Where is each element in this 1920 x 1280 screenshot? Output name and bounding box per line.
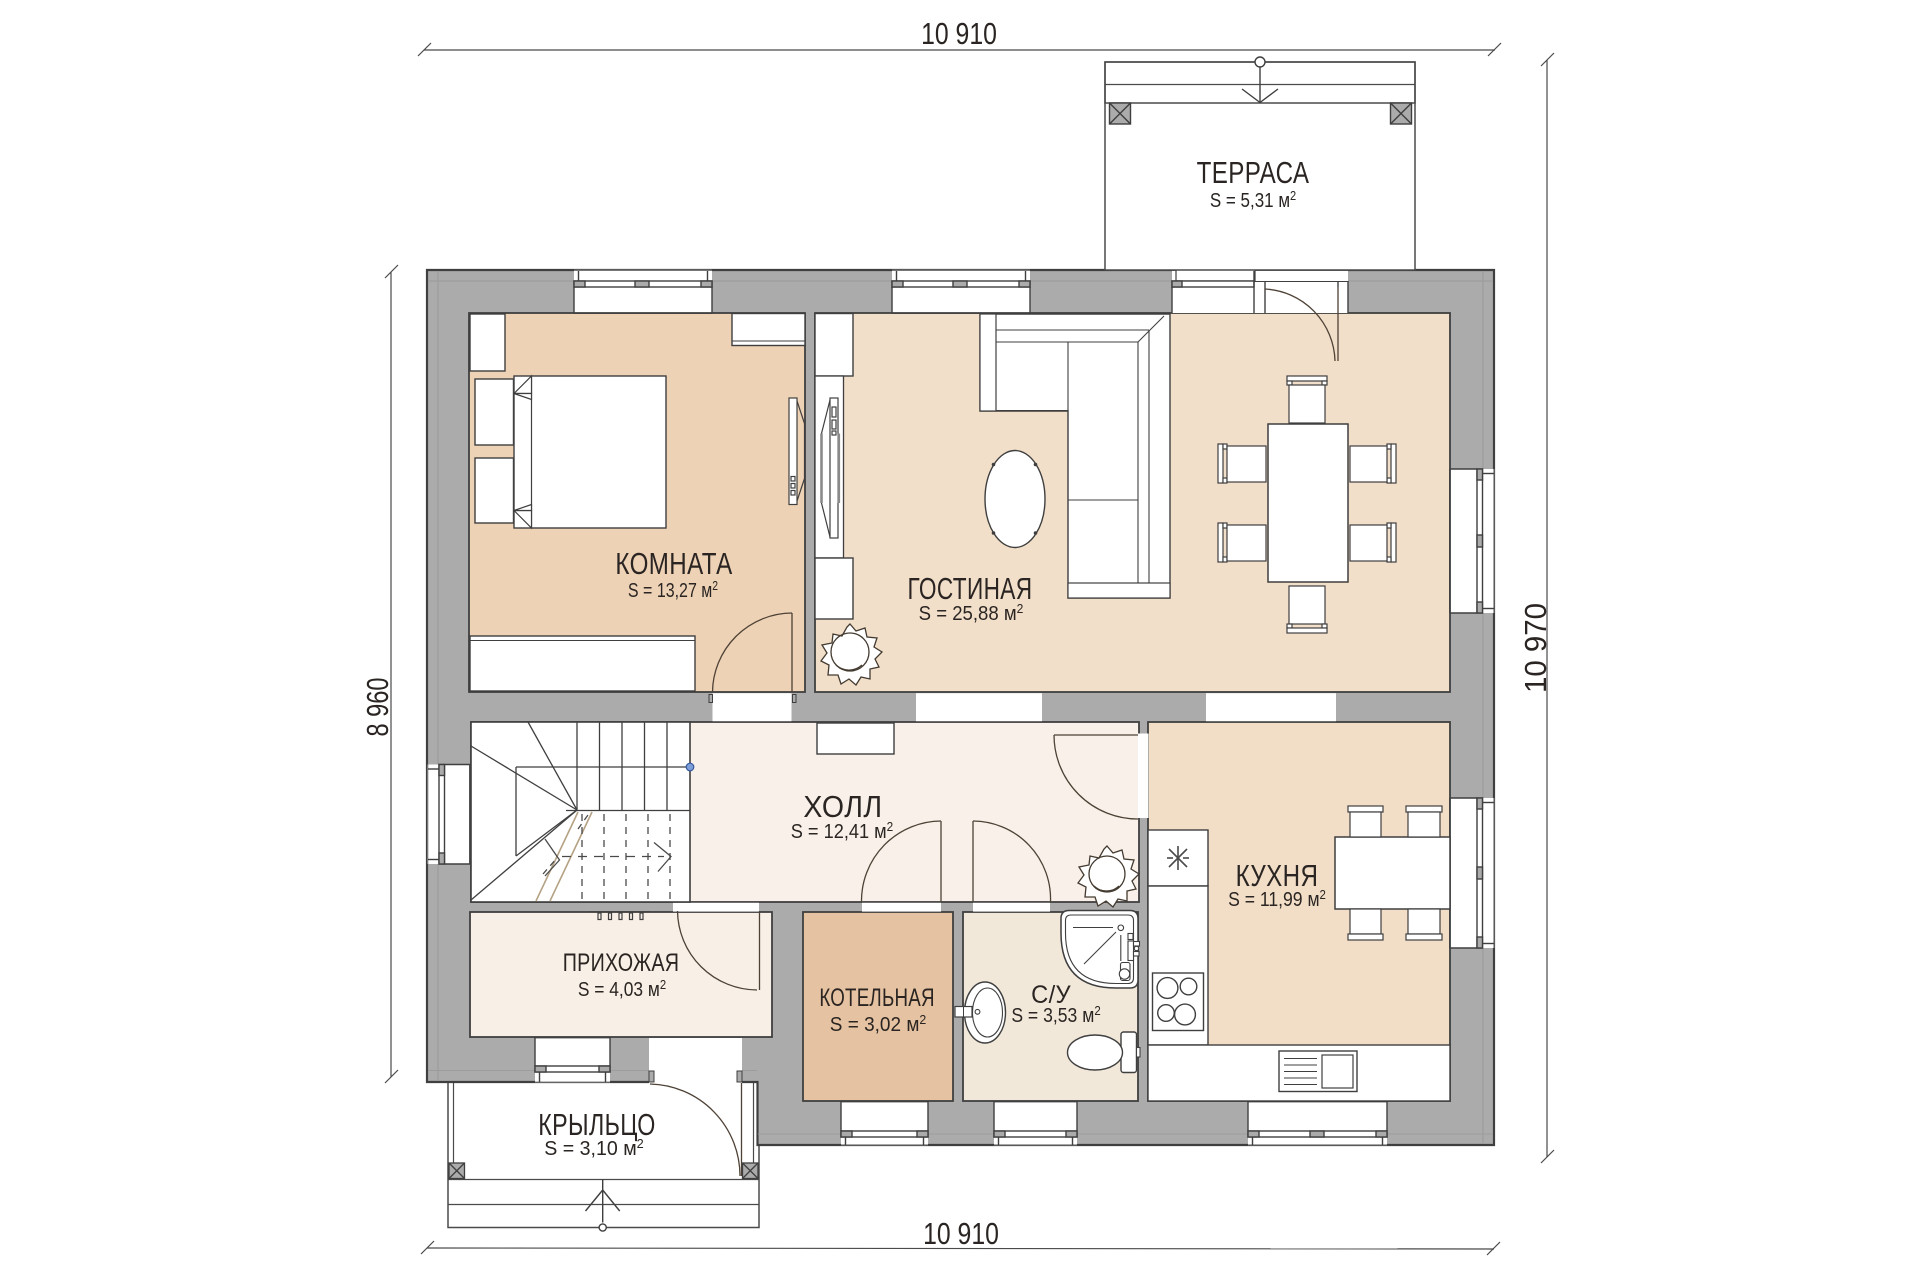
svg-text:S = 3,02 м2: S = 3,02 м2 [830,1013,926,1036]
svg-text:10 910: 10 910 [921,16,997,50]
svg-text:ТЕРРАСА: ТЕРРАСА [1197,155,1310,190]
svg-text:S = 25,88 м2: S = 25,88 м2 [919,602,1024,626]
svg-text:ХОЛЛ: ХОЛЛ [803,790,882,824]
svg-text:ПРИХОЖАЯ: ПРИХОЖАЯ [563,949,680,977]
svg-text:8 960: 8 960 [360,678,395,737]
svg-text:S = 12,41 м2: S = 12,41 м2 [791,819,894,843]
svg-text:S = 3,10 м2: S = 3,10 м2 [544,1136,644,1160]
svg-text:S = 13,27 м2: S = 13,27 м2 [628,579,718,601]
svg-text:S = 3,53 м2: S = 3,53 м2 [1011,1003,1101,1026]
svg-text:КОТЕЛЬНАЯ: КОТЕЛЬНАЯ [819,983,934,1011]
svg-text:S = 5,31 м2: S = 5,31 м2 [1210,188,1297,211]
svg-text:S = 4,03 м2: S = 4,03 м2 [578,977,667,1000]
svg-text:10 970: 10 970 [1519,603,1553,693]
svg-text:10 910: 10 910 [923,1216,999,1250]
svg-text:S = 11,99 м2: S = 11,99 м2 [1228,887,1326,910]
svg-text:ГОСТИНАЯ: ГОСТИНАЯ [908,570,1033,605]
svg-text:КОМНАТА: КОМНАТА [615,546,732,581]
